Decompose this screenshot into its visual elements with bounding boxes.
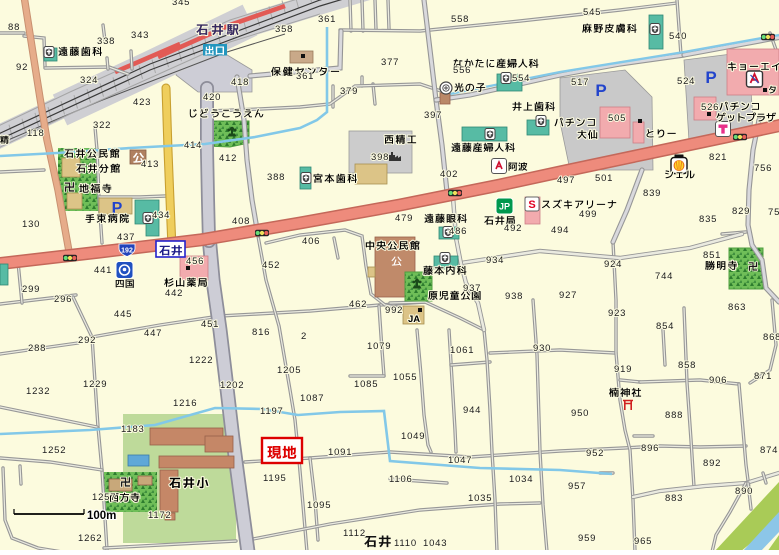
svg-text:1202: 1202: [220, 380, 244, 391]
svg-text:1222: 1222: [189, 355, 213, 366]
svg-text:965: 965: [634, 536, 652, 547]
svg-text:556: 556: [453, 65, 471, 76]
svg-text:494: 494: [551, 225, 569, 236]
svg-text:883: 883: [665, 493, 683, 504]
svg-text:526: 526: [701, 102, 719, 113]
svg-text:871: 871: [754, 371, 772, 382]
svg-text:952: 952: [586, 448, 604, 459]
svg-text:441: 441: [94, 265, 112, 276]
svg-text:950: 950: [571, 408, 589, 419]
svg-text:413: 413: [141, 159, 159, 170]
svg-text:88: 88: [8, 22, 20, 33]
svg-text:540: 540: [669, 31, 687, 42]
svg-text:919: 919: [614, 364, 632, 375]
svg-text:890: 890: [735, 486, 753, 497]
svg-text:343: 343: [131, 30, 149, 41]
svg-text:1112: 1112: [343, 528, 366, 539]
svg-text:892: 892: [703, 458, 721, 469]
svg-text:402: 402: [440, 169, 458, 180]
svg-text:1106: 1106: [389, 474, 413, 485]
svg-text:358: 358: [275, 24, 293, 35]
svg-text:1197: 1197: [260, 406, 284, 417]
svg-text:1035: 1035: [468, 493, 492, 504]
svg-text:854: 854: [656, 321, 674, 332]
svg-text:75: 75: [768, 207, 779, 218]
svg-text:406: 406: [302, 236, 320, 247]
svg-text:451: 451: [201, 319, 219, 330]
svg-text:377: 377: [381, 57, 399, 68]
svg-text:930: 930: [533, 343, 551, 354]
svg-text:1061: 1061: [450, 345, 474, 356]
svg-text:447: 447: [144, 328, 162, 339]
svg-text:P: P: [705, 68, 716, 87]
svg-text:292: 292: [78, 335, 96, 346]
svg-text:486: 486: [449, 226, 467, 237]
svg-text:452: 452: [262, 260, 280, 271]
svg-text:868: 868: [763, 332, 779, 343]
svg-text:423: 423: [133, 97, 151, 108]
svg-text:418: 418: [231, 77, 249, 88]
svg-text:462: 462: [349, 299, 367, 310]
svg-text:851: 851: [703, 250, 721, 261]
svg-text:398: 398: [371, 152, 389, 163]
svg-text:1085: 1085: [354, 379, 378, 390]
svg-text:1195: 1195: [263, 473, 287, 484]
svg-text:388: 388: [267, 172, 285, 183]
svg-text:437: 437: [117, 232, 135, 243]
svg-text:JA: JA: [408, 314, 420, 325]
svg-text:479: 479: [395, 213, 413, 224]
svg-text:434: 434: [152, 210, 170, 221]
svg-text:938: 938: [505, 291, 523, 302]
svg-text:118: 118: [27, 128, 45, 139]
svg-text:863: 863: [728, 302, 746, 313]
svg-text:524: 524: [677, 76, 695, 87]
svg-text:361: 361: [296, 71, 314, 82]
svg-text:839: 839: [643, 188, 661, 199]
svg-text:192: 192: [121, 248, 133, 255]
svg-text:829: 829: [732, 206, 750, 217]
svg-text:545: 545: [583, 7, 601, 18]
svg-text:322: 322: [93, 120, 111, 131]
svg-text:345: 345: [172, 0, 190, 8]
svg-text:888: 888: [665, 410, 683, 421]
svg-text:92: 92: [16, 62, 28, 73]
svg-text:835: 835: [699, 214, 717, 225]
svg-text:501: 501: [595, 173, 613, 184]
svg-text:412: 412: [219, 153, 237, 164]
svg-text:1095: 1095: [307, 500, 331, 511]
svg-text:1110: 1110: [394, 538, 417, 549]
svg-text:130: 130: [22, 219, 40, 230]
svg-text:1232: 1232: [26, 386, 50, 397]
svg-text:456: 456: [186, 256, 204, 267]
svg-text:1205: 1205: [277, 365, 301, 376]
svg-text:499: 499: [579, 209, 597, 220]
svg-text:338: 338: [97, 36, 115, 47]
svg-text:361: 361: [318, 14, 336, 25]
svg-text:1262: 1262: [78, 533, 102, 544]
svg-text:100m: 100m: [87, 510, 116, 522]
svg-text:2: 2: [301, 331, 307, 342]
svg-text:414: 414: [184, 140, 202, 151]
svg-text:554: 554: [512, 73, 530, 84]
svg-text:1055: 1055: [393, 372, 417, 383]
svg-text:1252: 1252: [42, 445, 66, 456]
svg-text:558: 558: [451, 14, 469, 25]
svg-text:445: 445: [114, 309, 132, 320]
svg-text:1229: 1229: [83, 379, 107, 390]
svg-text:1049: 1049: [401, 431, 425, 442]
svg-text:858: 858: [678, 360, 696, 371]
svg-text:1091: 1091: [328, 447, 352, 458]
svg-text:1079: 1079: [367, 341, 391, 352]
svg-text:992: 992: [385, 305, 403, 316]
svg-text:1183: 1183: [121, 424, 145, 435]
svg-text:959: 959: [578, 533, 596, 544]
svg-text:816: 816: [252, 327, 270, 338]
svg-text:1216: 1216: [173, 398, 197, 409]
svg-text:497: 497: [557, 175, 575, 186]
svg-text:517: 517: [571, 77, 589, 88]
svg-text:874: 874: [760, 445, 778, 456]
svg-text:923: 923: [608, 308, 626, 319]
svg-text:324: 324: [80, 75, 98, 86]
svg-text:1047: 1047: [448, 455, 472, 466]
svg-text:379: 379: [340, 86, 358, 97]
svg-text:756: 756: [754, 163, 772, 174]
svg-text:JP: JP: [499, 202, 510, 212]
svg-text:420: 420: [203, 92, 221, 103]
svg-text:442: 442: [165, 288, 183, 299]
svg-text:S: S: [528, 199, 535, 211]
svg-text:288: 288: [28, 343, 46, 354]
svg-text:P: P: [595, 81, 606, 100]
svg-text:937: 937: [463, 283, 481, 294]
svg-text:1172: 1172: [148, 510, 172, 521]
svg-text:927: 927: [559, 290, 577, 301]
svg-text:924: 924: [604, 259, 622, 270]
svg-text:299: 299: [22, 284, 40, 295]
svg-text:397: 397: [424, 110, 442, 121]
svg-text:1043: 1043: [423, 538, 447, 549]
svg-text:408: 408: [232, 216, 250, 227]
svg-text:934: 934: [486, 255, 504, 266]
svg-text:896: 896: [641, 443, 659, 454]
svg-text:1087: 1087: [300, 393, 324, 404]
svg-text:492: 492: [504, 223, 522, 234]
svg-text:906: 906: [709, 375, 727, 386]
svg-text:821: 821: [709, 152, 727, 163]
svg-text:744: 744: [655, 271, 673, 282]
svg-text:944: 944: [463, 405, 481, 416]
svg-text:957: 957: [568, 481, 586, 492]
svg-text:296: 296: [54, 294, 72, 305]
svg-text:1034: 1034: [509, 474, 533, 485]
svg-text:505: 505: [608, 113, 626, 124]
svg-text:1257: 1257: [92, 492, 116, 503]
